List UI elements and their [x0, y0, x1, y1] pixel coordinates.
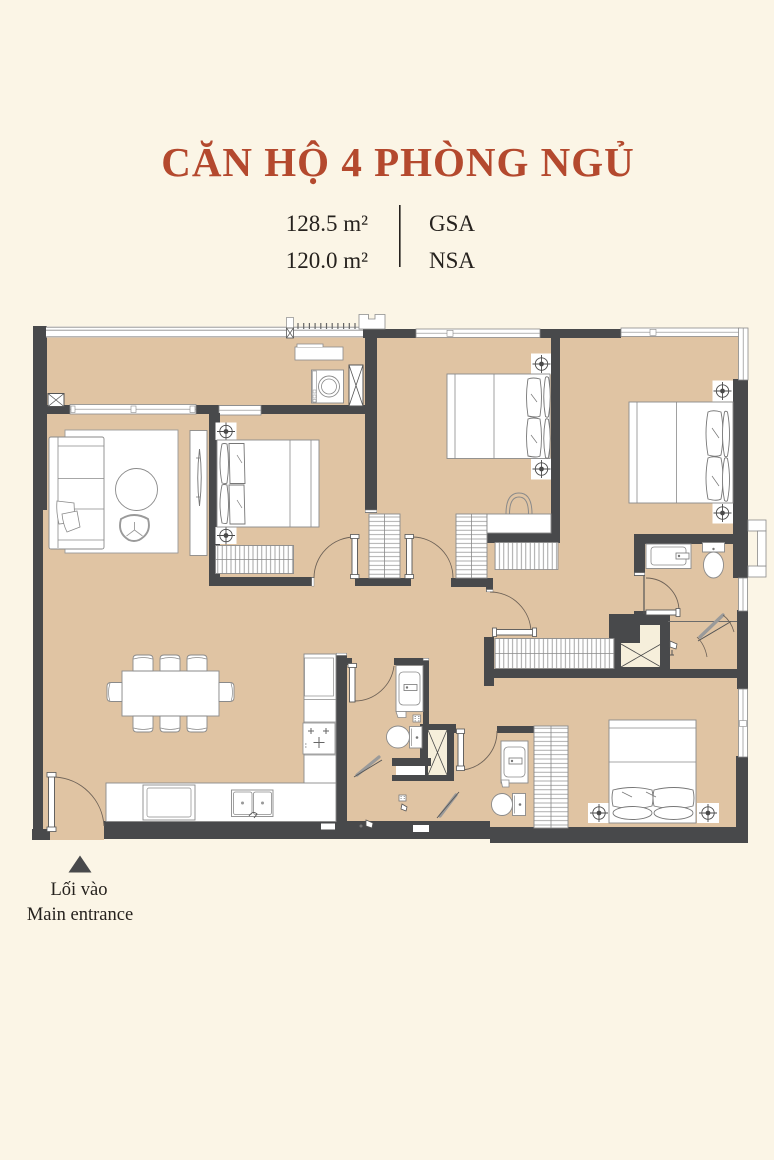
svg-text:CĂN HỘ 4 PHÒNG NGỦ: CĂN HỘ 4 PHÒNG NGỦ: [161, 139, 635, 185]
svg-text:GSA: GSA: [429, 211, 475, 236]
svg-text:NSA: NSA: [429, 248, 475, 273]
svg-text:Lối vào: Lối vào: [50, 880, 107, 900]
svg-text:Main entrance: Main entrance: [27, 905, 133, 925]
svg-text:120.0 m²: 120.0 m²: [286, 248, 368, 273]
svg-text:128.5 m²: 128.5 m²: [286, 211, 368, 236]
